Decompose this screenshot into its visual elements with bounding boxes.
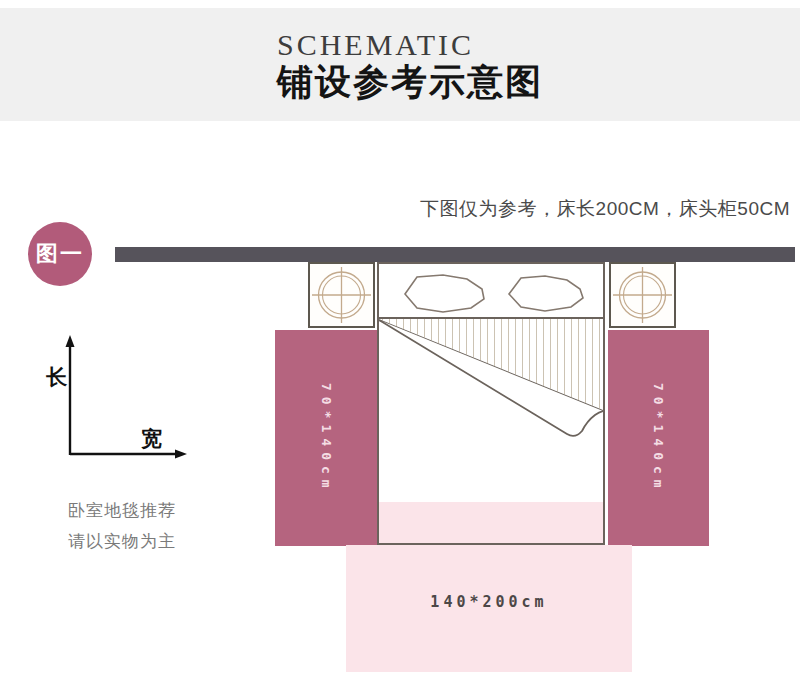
carpet-bottom: 140*200cm — [346, 545, 632, 672]
title-block: SCHEMATIC 铺设参考示意图 — [277, 29, 543, 102]
carpet-left: 70*140cm — [275, 330, 377, 546]
reference-note: 下图仅为参考，床长200CM，床头柜50CM — [420, 196, 790, 222]
pillow-right-icon — [509, 276, 583, 311]
nightstand-left — [308, 262, 375, 328]
nightstand-right — [609, 262, 676, 328]
nightstand-lamp-icon — [611, 264, 674, 326]
axis-width-label: 宽 — [141, 425, 162, 453]
figure-badge-label: 图一 — [36, 239, 84, 269]
schematic-page: SCHEMATIC 铺设参考示意图 下图仅为参考，床长200CM，床头柜50CM… — [0, 0, 800, 693]
bed-top-view-icon — [379, 264, 603, 543]
title-english: SCHEMATIC — [277, 29, 543, 61]
nightstand-lamp-icon — [310, 264, 373, 326]
footnote-line-2: 请以实物为主 — [68, 526, 176, 557]
carpet-bottom-size-label: 140*200cm — [430, 593, 547, 611]
carpet-right-size-label: 70*140cm — [651, 383, 666, 494]
figure-badge: 图一 — [28, 222, 92, 286]
footnote: 卧室地毯推荐 请以实物为主 — [68, 495, 176, 557]
axis-length-label: 长 — [46, 363, 67, 391]
footnote-line-1: 卧室地毯推荐 — [68, 495, 176, 526]
bed — [377, 262, 605, 545]
wall-bar — [115, 247, 795, 262]
carpet-right: 70*140cm — [608, 330, 709, 546]
pillow-left-icon — [405, 275, 484, 312]
header-band: SCHEMATIC 铺设参考示意图 — [0, 8, 800, 121]
title-chinese: 铺设参考示意图 — [277, 62, 543, 102]
dimension-axis-icon — [40, 333, 190, 468]
carpet-left-size-label: 70*140cm — [319, 383, 334, 494]
